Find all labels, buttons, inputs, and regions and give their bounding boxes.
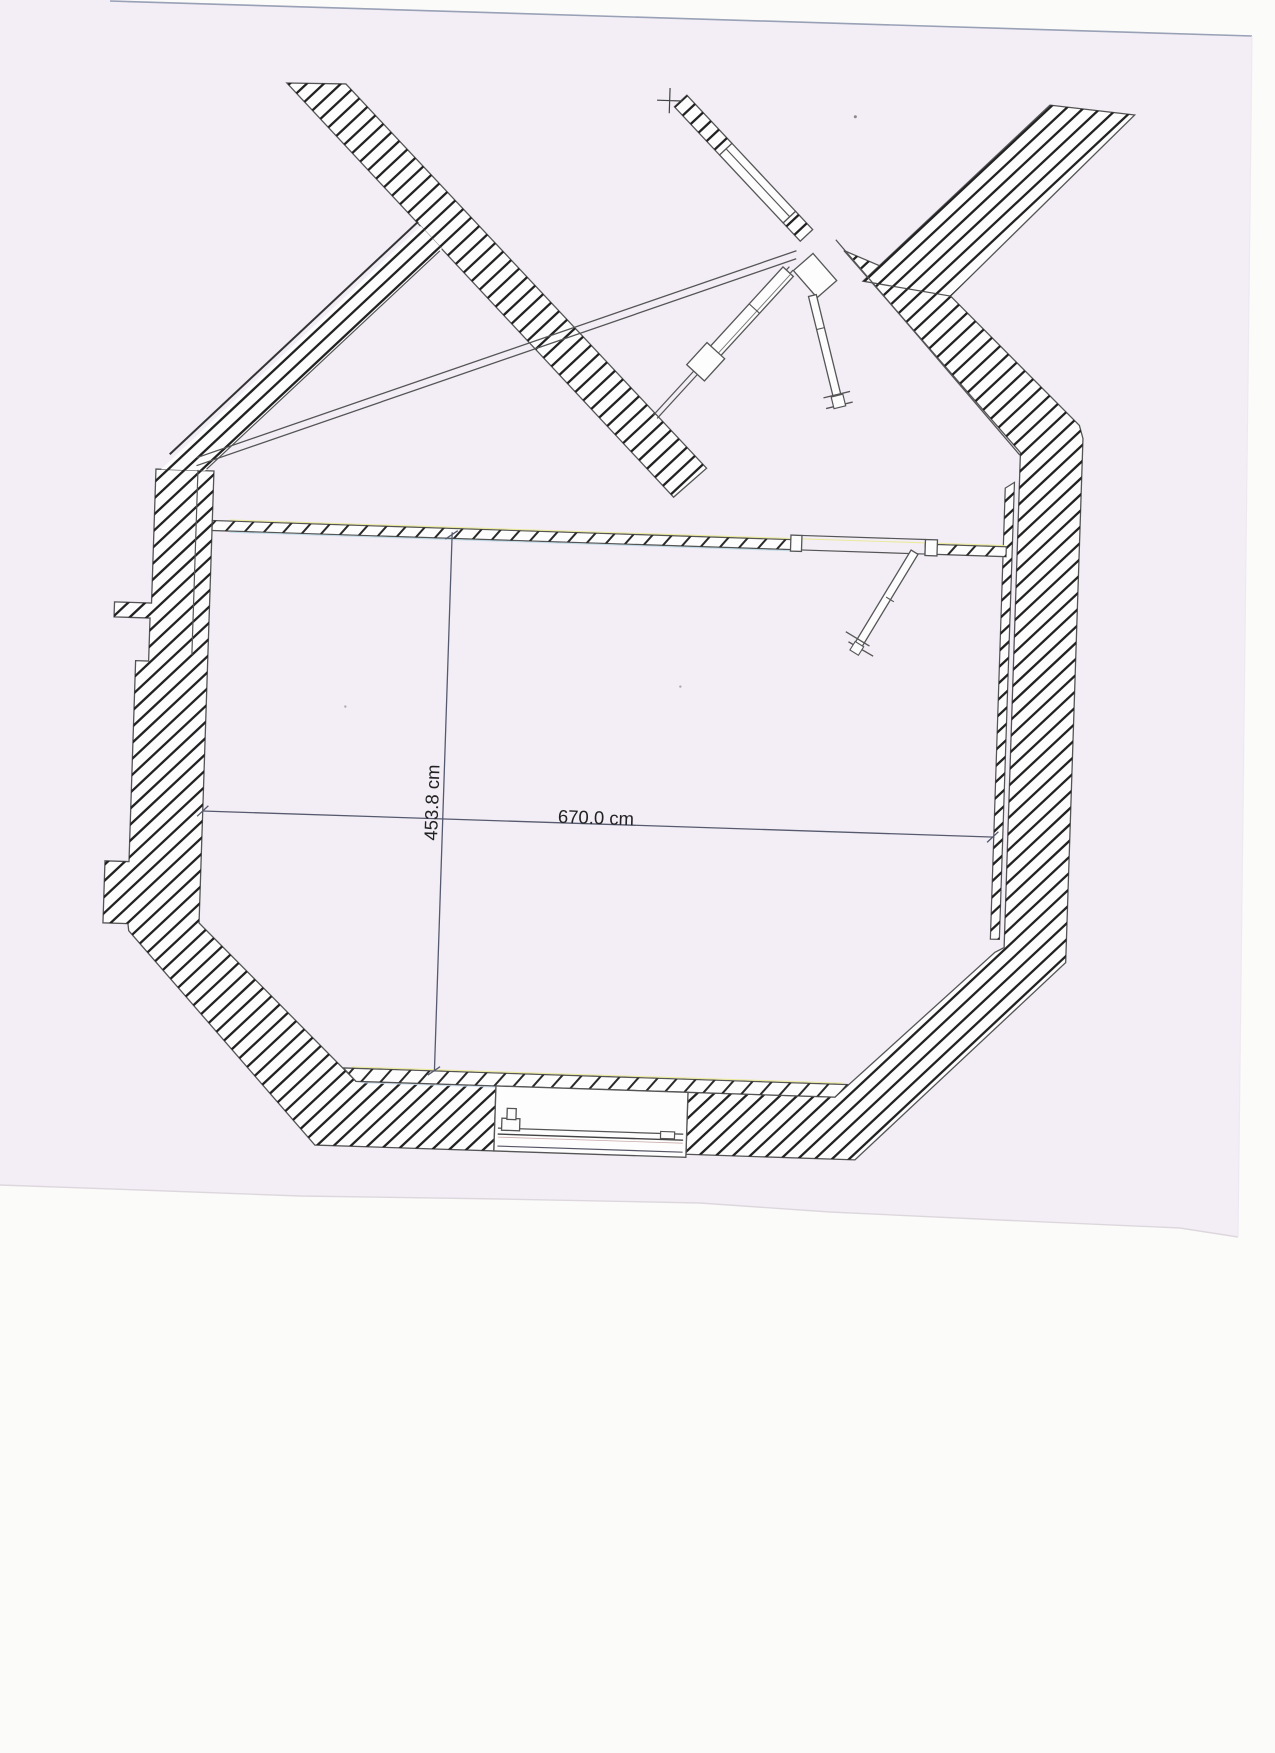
svg-text:670.0 cm: 670.0 cm	[558, 806, 635, 829]
svg-text:453.8 cm: 453.8 cm	[420, 764, 443, 841]
